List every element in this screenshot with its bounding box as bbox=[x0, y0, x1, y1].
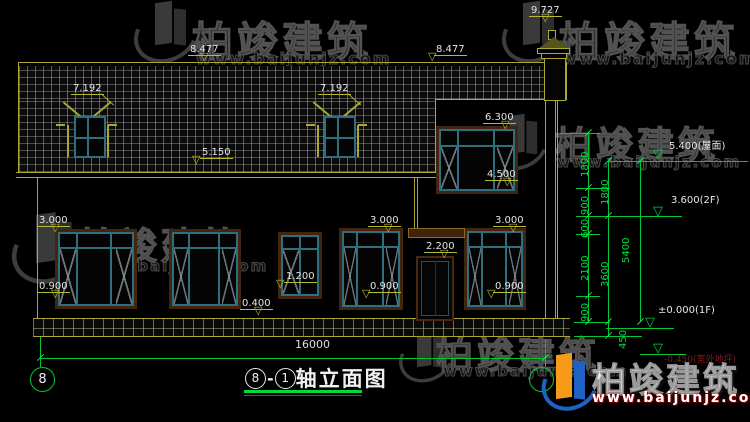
dim-tick bbox=[637, 318, 644, 325]
window-casement-symbol bbox=[60, 249, 76, 304]
brand-logo bbox=[541, 352, 597, 412]
elevation-marker-door-top: 2.200 ▽ bbox=[424, 241, 457, 253]
triangle-marker-icon: ▽ bbox=[440, 248, 448, 259]
window-mullion bbox=[382, 233, 384, 305]
dormer-eave-horn bbox=[56, 124, 65, 126]
roof-edge-right bbox=[566, 63, 567, 99]
elevation-marker-win2f-top: 6.300 ▽ bbox=[483, 112, 516, 124]
dim-label: 1800 bbox=[580, 152, 591, 177]
roof-edge-left bbox=[18, 63, 19, 172]
dim-label: 2100 bbox=[580, 256, 591, 281]
elevation-value: 6.300 bbox=[483, 112, 516, 123]
brand-building-icon bbox=[574, 360, 585, 399]
elevation-marker-win-right-sill: 0.900 ▽ bbox=[493, 281, 526, 293]
dim-label: 1800 bbox=[600, 180, 611, 205]
brand-url: www.baijunjz.com bbox=[592, 390, 750, 406]
dim-label: 5400 bbox=[621, 238, 632, 263]
chimney-body bbox=[544, 58, 566, 101]
triangle-marker-icon: ▽ bbox=[254, 305, 262, 316]
watermark-building-icon bbox=[155, 1, 172, 45]
title-axis-circle-left: 8 bbox=[245, 368, 266, 389]
level-label-floor2: 3.600(2F) bbox=[671, 195, 720, 206]
wall-edge-left bbox=[37, 176, 38, 320]
triangle-marker-icon: ▽ bbox=[509, 222, 517, 233]
window-mullion bbox=[481, 233, 483, 305]
window-mullion bbox=[188, 234, 190, 304]
title-underline-thin bbox=[244, 395, 362, 396]
window-casement-symbol bbox=[509, 248, 521, 305]
dim-label: 450 bbox=[618, 330, 629, 349]
triangle-marker-icon: ▽ bbox=[51, 222, 59, 233]
dormer-left-window bbox=[74, 116, 106, 158]
marker-line bbox=[434, 55, 467, 56]
marker-line bbox=[485, 180, 518, 181]
elevation-value: 4.500 bbox=[485, 169, 518, 180]
level-triangle-icon: ▽ bbox=[653, 205, 663, 218]
window-1f-2 bbox=[172, 232, 238, 306]
triangle-marker-icon: ▽ bbox=[501, 119, 509, 130]
chimney-cap-roof bbox=[539, 37, 569, 48]
level-triangle-icon: ▽ bbox=[653, 148, 663, 161]
window-1f-small bbox=[281, 235, 319, 296]
window-mullion bbox=[218, 234, 220, 304]
dormer-eave-horn bbox=[306, 124, 315, 126]
window-casement-symbol bbox=[116, 249, 132, 304]
marker-line bbox=[368, 292, 401, 293]
watermark-building-icon bbox=[526, 121, 537, 155]
window-mullion bbox=[76, 234, 78, 304]
dim-label: 3600 bbox=[600, 262, 611, 287]
elevation-marker-dormer-right: 7.192 bbox=[318, 83, 351, 95]
window-casement-symbol bbox=[386, 248, 398, 305]
elevation-value: 1.200 bbox=[284, 271, 317, 282]
roof-level-line bbox=[608, 161, 748, 162]
elevation-marker-win-left-sill: 0.900 ▽ bbox=[37, 281, 70, 293]
door-canopy bbox=[408, 228, 465, 238]
overall-dimension-value: 16000 bbox=[295, 338, 330, 351]
entry-door bbox=[416, 256, 454, 321]
dormer-eave-horn bbox=[108, 124, 117, 126]
triangle-marker-icon: ▽ bbox=[503, 176, 511, 187]
elevation-marker-dormer-left: 7.192 bbox=[71, 83, 104, 95]
marker-line bbox=[71, 94, 104, 95]
triangle-marker-icon: ▽ bbox=[276, 278, 284, 289]
triangle-marker-icon: ▽ bbox=[192, 154, 200, 165]
extension-line bbox=[576, 216, 682, 217]
level-triangle-icon: ▽ bbox=[645, 316, 655, 329]
window-mullion bbox=[457, 131, 459, 189]
window-casement-symbol bbox=[441, 147, 457, 189]
elevation-marker-win-right-top: 3.000 ▽ bbox=[493, 215, 526, 227]
elevation-marker-win-left-top: 3.000 ▽ bbox=[37, 215, 70, 227]
axis-number: 8 bbox=[38, 372, 46, 387]
elevation-marker-plinth: 0.400 ▽ bbox=[240, 298, 273, 310]
triangle-marker-icon: ▽ bbox=[51, 288, 59, 299]
title-underline-thick bbox=[244, 390, 362, 393]
window-mullion bbox=[299, 237, 301, 294]
dormer-right-window bbox=[324, 116, 356, 158]
title-text: 轴立面图 bbox=[296, 363, 388, 393]
dim-label: 600 bbox=[580, 219, 591, 238]
elevation-value: 0.900 bbox=[493, 281, 526, 292]
elevation-marker-ridge-left: 8.477 ▽ bbox=[188, 44, 221, 56]
elevation-value: 7.192 bbox=[71, 83, 104, 94]
elevation-marker-eave: 5.150 ▽ bbox=[200, 147, 233, 159]
window-mullion bbox=[326, 137, 354, 139]
window-mullion bbox=[110, 234, 112, 304]
dimension-chain-line bbox=[640, 161, 641, 322]
elevation-marker-ridge-right: 8.477 ▽ bbox=[434, 44, 467, 56]
extension-line bbox=[560, 133, 600, 134]
plinth-brick-base bbox=[33, 318, 570, 337]
watermark-building-icon bbox=[174, 8, 186, 45]
window-mullion bbox=[505, 233, 507, 305]
axis-extension-left bbox=[40, 337, 41, 367]
window-casement-symbol bbox=[222, 249, 236, 304]
triangle-marker-icon: ▽ bbox=[200, 51, 208, 62]
title-axis-circle-right: 1 bbox=[275, 368, 296, 389]
downspout-pipe bbox=[545, 100, 546, 320]
title-dash: - bbox=[267, 369, 274, 388]
wall-edge-right bbox=[557, 100, 558, 320]
entry-bay-corner bbox=[417, 176, 418, 229]
window-mullion bbox=[76, 137, 104, 139]
downspout-pipe bbox=[555, 100, 556, 320]
triangle-marker-icon: ▽ bbox=[428, 51, 436, 62]
elevation-value: 8.477 bbox=[434, 44, 467, 55]
elevation-value: 0.900 bbox=[368, 281, 401, 292]
window-1f-1 bbox=[58, 232, 134, 306]
overall-dimension-line bbox=[40, 358, 545, 359]
triangle-marker-icon: ▽ bbox=[384, 222, 392, 233]
window-1f-3 bbox=[342, 231, 400, 307]
watermark-url: www.baijunjz.com bbox=[562, 49, 750, 68]
roof-tower-junction-line bbox=[435, 99, 436, 172]
axis-bubble-8: 8 bbox=[30, 367, 55, 392]
elevation-marker-win-mid-top: 3.000 ▽ bbox=[368, 215, 401, 227]
window-mullion bbox=[356, 233, 358, 305]
marker-line bbox=[483, 123, 516, 124]
window-casement-symbol bbox=[344, 248, 356, 305]
elevation-marker-win-small-sill: 1.200 ▽ bbox=[284, 271, 317, 283]
entry-bay-corner bbox=[414, 176, 415, 229]
elevation-marker-win-mid-sill: 0.900 ▽ bbox=[368, 281, 401, 293]
level-label-floor1: ±0.000(1F) bbox=[658, 305, 715, 316]
elevation-marker-chimney: 9.727 ▽ bbox=[529, 5, 562, 17]
window-casement-symbol bbox=[174, 249, 188, 304]
drawing-title: 8 - 1 轴立面图 bbox=[245, 363, 388, 393]
dim-label: 900 bbox=[580, 196, 591, 215]
main-eave-band bbox=[16, 172, 437, 178]
dim-label: 900 bbox=[580, 303, 591, 322]
marker-line bbox=[200, 158, 233, 159]
elevation-value: 7.192 bbox=[318, 83, 351, 94]
cad-elevation-drawing: 柏竣建筑 www.baijunjz.com 柏竣建筑 www.baijunjz.… bbox=[0, 0, 750, 422]
dormer-eave-horn bbox=[358, 124, 367, 126]
door-center-line bbox=[435, 261, 436, 316]
marker-line bbox=[318, 94, 351, 95]
window-casement-symbol bbox=[469, 248, 481, 305]
brand-building-icon bbox=[556, 353, 572, 399]
elevation-value: 5.150 bbox=[200, 147, 233, 158]
triangle-marker-icon: ▽ bbox=[487, 288, 495, 299]
elevation-marker-win2f-sill: 4.500 ▽ bbox=[485, 169, 518, 181]
marker-line bbox=[493, 292, 526, 293]
triangle-marker-icon: ▽ bbox=[362, 288, 370, 299]
marker-line bbox=[284, 282, 317, 283]
floor1-level-line bbox=[606, 328, 674, 329]
level-label-roof: 5.400(屋面) bbox=[669, 137, 725, 152]
triangle-marker-icon: ▽ bbox=[541, 12, 549, 23]
